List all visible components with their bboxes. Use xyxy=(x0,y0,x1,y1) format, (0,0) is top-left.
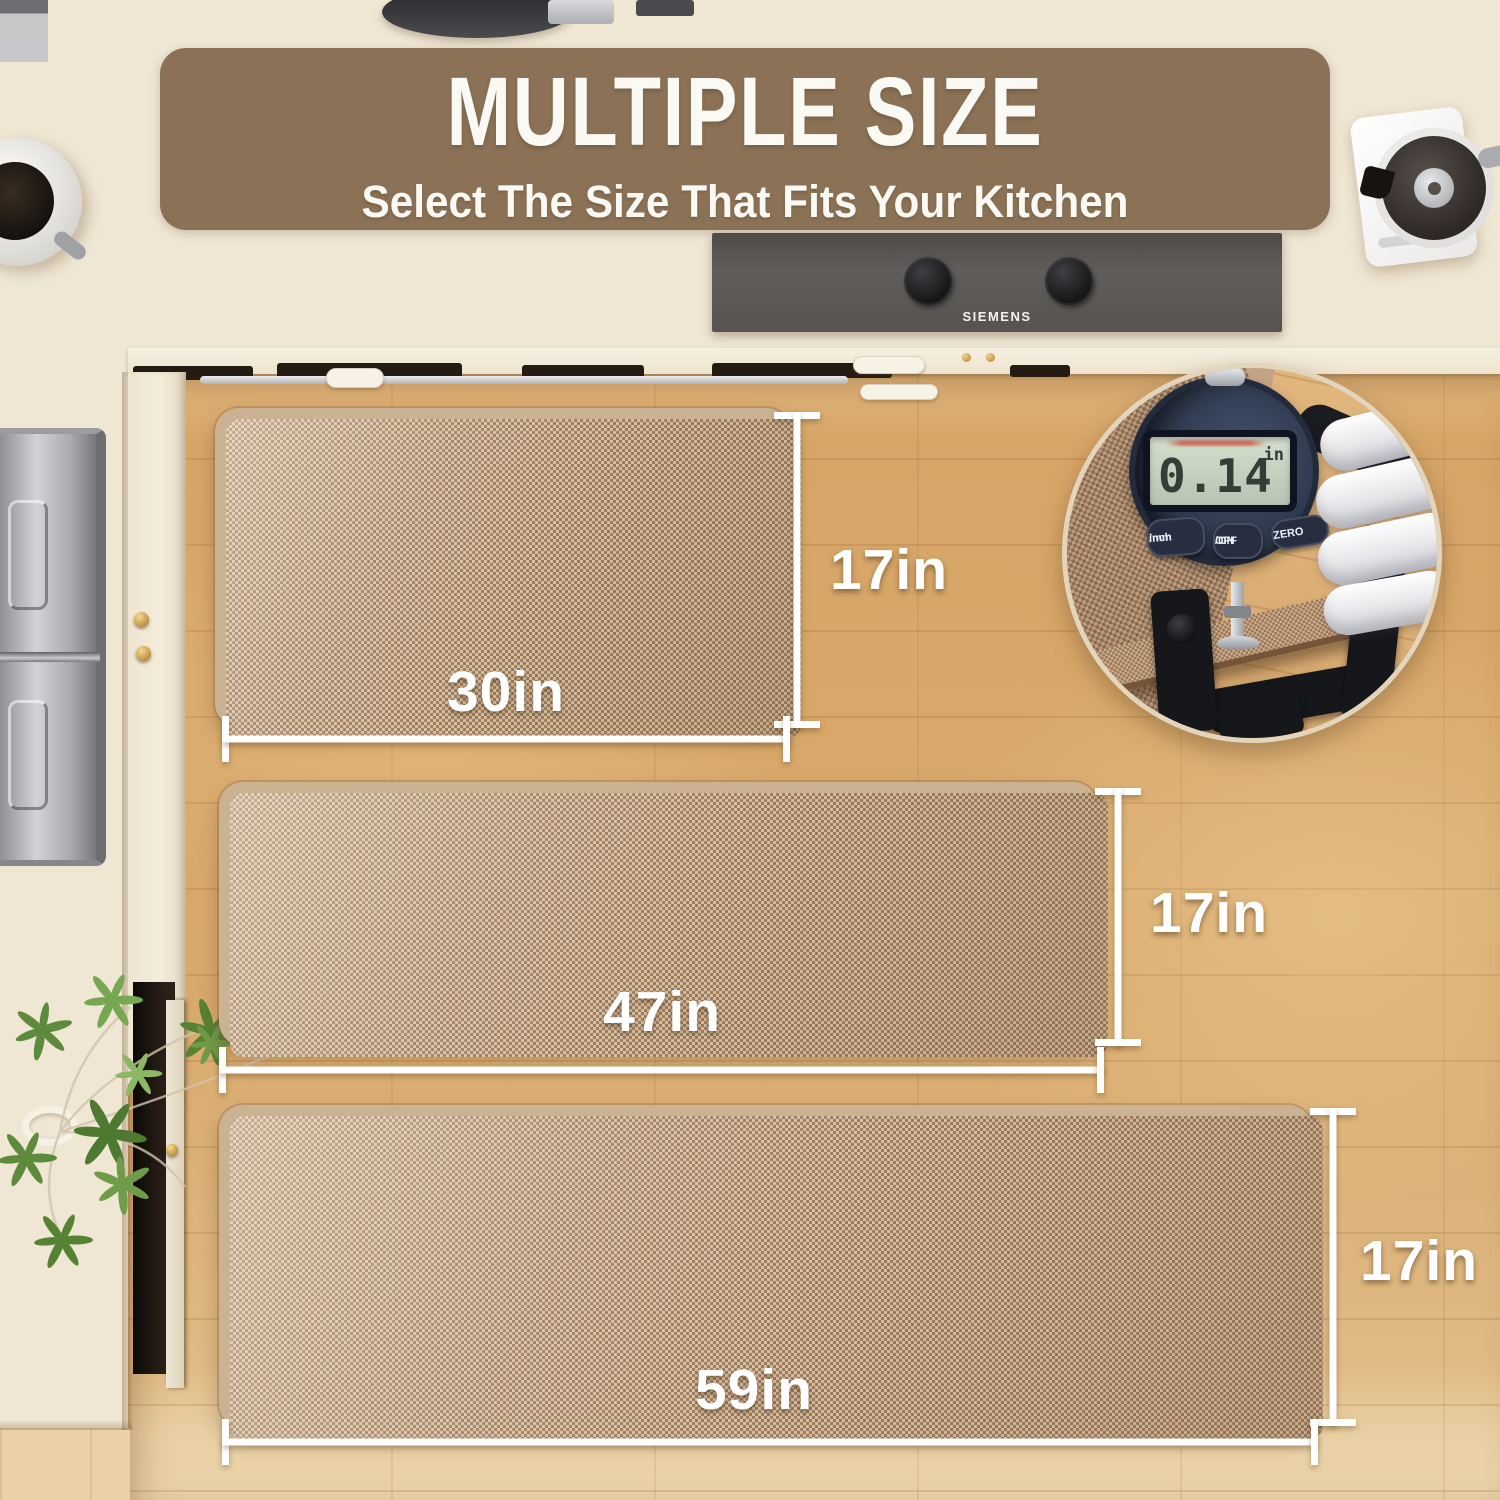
appliance-divider xyxy=(0,652,100,662)
banner-subtitle: Select The Size That Fits Your Kitchen xyxy=(195,176,1295,228)
cooktop-knob xyxy=(1045,257,1093,305)
gauge-lcd-display: 0.14 in xyxy=(1143,430,1297,512)
headline-banner: MULTIPLE SIZE Select The Size That Fits … xyxy=(160,48,1330,230)
width-label-small: 30in xyxy=(447,659,565,725)
kettle-lid-knob xyxy=(1428,182,1441,195)
width-measure-line-large xyxy=(222,1419,1318,1465)
metal-tray xyxy=(548,0,614,24)
gauge-spindle-nut xyxy=(1224,606,1251,618)
small-appliance xyxy=(0,0,48,62)
drawer-handle xyxy=(326,368,384,388)
height-measure-line-large xyxy=(1310,1108,1356,1426)
height-measure-line-medium xyxy=(1095,788,1141,1046)
dark-appliance xyxy=(382,0,572,38)
thickness-gauge-inset: 0.14 in inch /mm OFF /ON ZERO xyxy=(1062,363,1442,743)
wood-floor-light-corner xyxy=(0,1428,130,1500)
gauge-reading-value: 0.14 xyxy=(1158,449,1273,503)
appliance-panel-etch xyxy=(8,500,48,610)
small-gadget xyxy=(636,0,694,16)
width-measure-line-medium xyxy=(219,1047,1104,1093)
cabinet-knob xyxy=(134,612,149,627)
button-label: ZERO xyxy=(1272,525,1304,542)
height-label-medium: 17in xyxy=(1150,880,1268,946)
height-label-small: 17in xyxy=(830,537,948,603)
gauge-anvil xyxy=(1217,636,1259,650)
height-label-large: 17in xyxy=(1360,1228,1478,1294)
drawer-handle xyxy=(860,384,938,400)
button-label: /mm xyxy=(1149,531,1172,545)
brass-hinge xyxy=(962,353,971,362)
product-size-infographic: SIEMENS MULTIPLE SIZE Select The Size Th… xyxy=(0,0,1500,1500)
cabinet-gap xyxy=(1010,365,1070,377)
siemens-cooktop: SIEMENS xyxy=(712,233,1282,332)
cabinet-knob xyxy=(136,646,151,661)
width-label-medium: 47in xyxy=(603,979,721,1045)
clamp-left-bracket xyxy=(1150,588,1218,734)
height-measure-line-small xyxy=(774,412,820,728)
brass-hinge xyxy=(986,353,995,362)
banner-title: MULTIPLE SIZE xyxy=(277,56,1213,168)
counter-bottom-shadow xyxy=(0,1420,132,1430)
cooktop-knob xyxy=(904,257,952,305)
cooktop-brand-label: SIEMENS xyxy=(712,309,1282,324)
gauge-top-button xyxy=(1205,368,1245,386)
clamp-bolt xyxy=(1167,614,1197,644)
gauge-unit-button[interactable]: inch /mm xyxy=(1146,516,1207,558)
appliance-panel-etch xyxy=(8,700,48,810)
button-label: /ON xyxy=(1215,535,1235,547)
towel-bar xyxy=(200,376,848,384)
drawer-handle xyxy=(853,356,925,374)
gauge-power-button[interactable]: OFF /ON xyxy=(1213,523,1263,559)
gauge-reading-unit: in xyxy=(1264,445,1284,465)
width-label-large: 59in xyxy=(695,1357,813,1423)
